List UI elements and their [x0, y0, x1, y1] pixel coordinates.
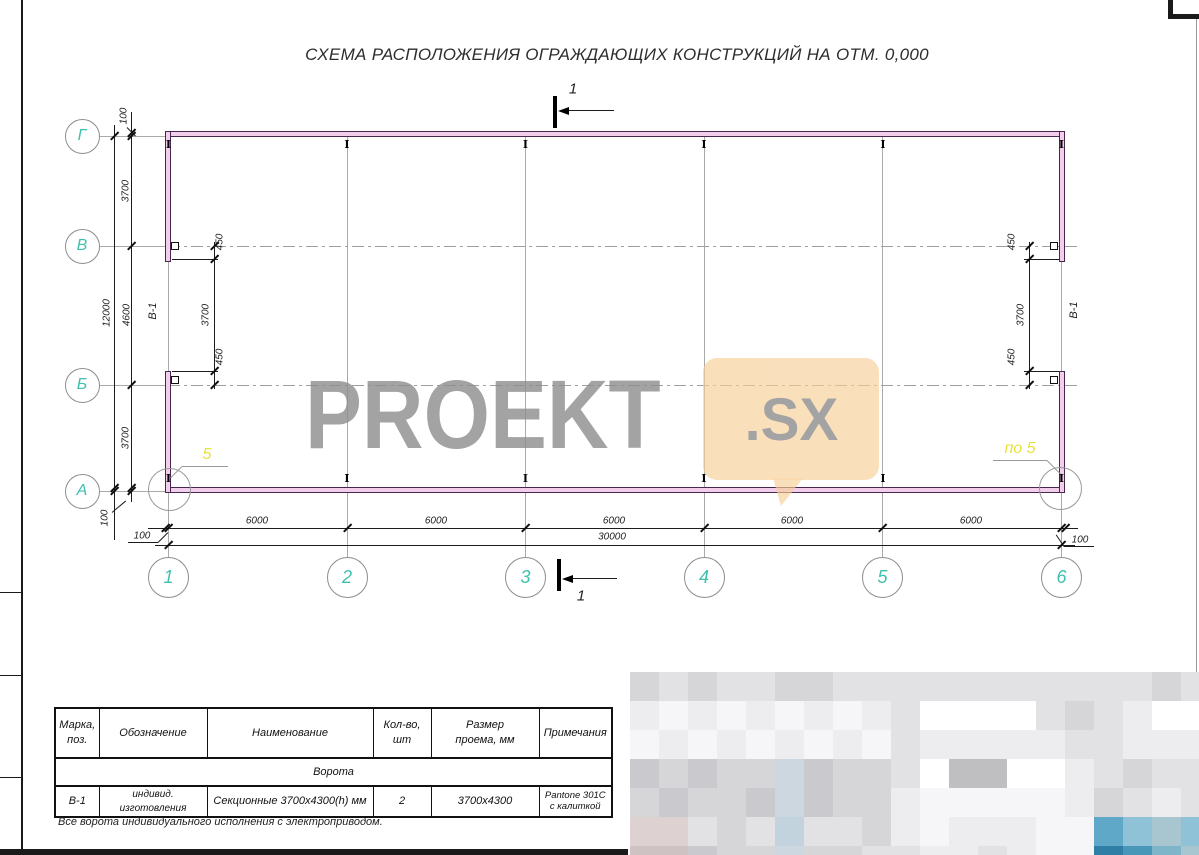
section-mark-arrowhead-top: [558, 107, 569, 115]
dim-label-6000: 6000: [603, 516, 625, 527]
mosaic-cell: [1094, 817, 1124, 847]
mosaic-cell: [833, 846, 863, 855]
mosaic-cell: [688, 730, 718, 760]
dim-leader: [1064, 546, 1094, 547]
spec-header-notes: Примечания: [539, 708, 612, 758]
mosaic-cell: [862, 788, 892, 818]
mosaic-cell: [920, 788, 950, 818]
column-mark: I: [523, 139, 528, 150]
mosaic-cell: [1152, 759, 1182, 789]
mosaic-cell: [1007, 672, 1037, 702]
mosaic-cell: [746, 672, 776, 702]
detail-label-right: по 5: [1004, 440, 1035, 458]
mosaic-cell: [891, 701, 921, 731]
mosaic-cell: [804, 701, 834, 731]
axis-bubble-col-6: 6: [1041, 557, 1082, 598]
mosaic-cell: [1123, 817, 1153, 847]
dim-label-4600: 4600: [122, 304, 133, 326]
dim-label-3700: 3700: [121, 180, 132, 202]
dim-label-3700-gate: 3700: [1016, 304, 1027, 326]
frame-margin-tick: [0, 592, 21, 593]
mosaic-cell: [978, 701, 1008, 731]
mosaic-cell: [775, 788, 805, 818]
mosaic-cell: [920, 759, 950, 789]
mosaic-cell: [630, 759, 660, 789]
mosaic-cell: [949, 846, 979, 855]
dim-label-6000: 6000: [781, 516, 803, 527]
mosaic-cell: [659, 817, 689, 847]
mosaic-cell: [891, 730, 921, 760]
mosaic-cell: [949, 672, 979, 702]
axis-bubble-label: 1: [163, 567, 173, 588]
spec-header-designation: Обозначение: [99, 708, 207, 758]
watermark-bubble: .SX: [703, 358, 879, 480]
mosaic-cell: [775, 701, 805, 731]
mosaic-cell: [949, 759, 979, 789]
watermark-suffix: .SX: [744, 385, 838, 454]
mosaic-cell: [775, 672, 805, 702]
section-mark-arrowhead-bottom: [562, 575, 573, 583]
mosaic-cell: [1036, 817, 1066, 847]
column-mark: I: [701, 139, 706, 150]
mosaic-cell: [1181, 701, 1199, 731]
mosaic-cell: [862, 701, 892, 731]
spec-group-row: Ворота: [55, 758, 612, 786]
mosaic-cell: [1094, 672, 1124, 702]
mosaic-cell: [1152, 672, 1182, 702]
dim-label-100-offset-left: 100: [134, 531, 151, 542]
dim-label-6000: 6000: [960, 516, 982, 527]
frame-corner-horizontal: [1168, 14, 1199, 19]
mosaic-cell: [1007, 759, 1037, 789]
mosaic-cell: [804, 846, 834, 855]
frame-left-line: [21, 0, 23, 851]
mosaic-cell: [1065, 701, 1095, 731]
mosaic-cell: [717, 788, 747, 818]
mosaic-cell: [688, 817, 718, 847]
mosaic-cell: [1036, 672, 1066, 702]
mosaic-cell: [1036, 701, 1066, 731]
wall-top: [165, 131, 1065, 137]
mosaic-cell: [630, 701, 660, 731]
mosaic-cell: [891, 759, 921, 789]
axis-bubble-row-g: Г: [65, 119, 100, 154]
watermark: PROEKT .SX: [305, 352, 885, 504]
mosaic-cell: [717, 759, 747, 789]
dim-label-450: 450: [1007, 234, 1018, 251]
mosaic-cell: [717, 817, 747, 847]
mosaic-cell: [1152, 788, 1182, 818]
axis-bubble-col-1: 1: [148, 557, 189, 598]
mosaic-cell: [1181, 846, 1199, 855]
mosaic-cell: [1152, 701, 1182, 731]
mosaic-cell: [688, 701, 718, 731]
axis-bubble-col-4: 4: [684, 557, 725, 598]
mosaic-cell: [1152, 817, 1182, 847]
mosaic-cell: [1007, 788, 1037, 818]
mosaic-cell: [775, 730, 805, 760]
axis-line-v-dashdot: [168, 246, 1078, 247]
mosaic-cell: [746, 788, 776, 818]
spec-header-size: Размер проема, мм: [431, 708, 539, 758]
censored-image-mosaic: [630, 672, 1199, 855]
mosaic-cell: [804, 672, 834, 702]
axis-bubble-col-3: 3: [505, 557, 546, 598]
mosaic-cell: [1123, 672, 1153, 702]
detail-leader: [182, 466, 228, 467]
mosaic-cell: [1181, 730, 1199, 760]
mosaic-cell: [804, 817, 834, 847]
mosaic-cell: [920, 817, 950, 847]
mosaic-cell: [630, 817, 660, 847]
mosaic-cell: [717, 730, 747, 760]
axis-bubble-col-2: 2: [327, 557, 368, 598]
axis-bubble-row-b: Б: [65, 368, 100, 403]
gate-jamb-mark: [1050, 376, 1058, 384]
mosaic-cell: [1007, 846, 1037, 855]
mosaic-cell: [775, 759, 805, 789]
watermark-bubble-tail: [773, 478, 803, 506]
mosaic-cell: [688, 846, 718, 855]
dim-label-100-offset-right: 100: [1072, 535, 1089, 546]
spec-cell-name: Секционные 3700х4300(h) мм: [207, 786, 373, 817]
axis-bubble-label: А: [77, 482, 88, 500]
mosaic-cell: [1007, 730, 1037, 760]
axis-bubble-label: 4: [699, 567, 709, 588]
mosaic-cell: [1036, 788, 1066, 818]
mosaic-cell: [1036, 730, 1066, 760]
frame-margin-tick: [0, 777, 21, 778]
dim-label-450: 450: [215, 349, 226, 366]
mosaic-cell: [1123, 759, 1153, 789]
dim-leader: [128, 542, 158, 543]
mosaic-cell: [920, 730, 950, 760]
mosaic-cell: [659, 672, 689, 702]
mosaic-cell: [659, 788, 689, 818]
mosaic-cell: [775, 846, 805, 855]
mosaic-cell: [978, 759, 1008, 789]
watermark-text: PROEKT: [305, 366, 661, 463]
mosaic-cell: [1123, 788, 1153, 818]
dim-label-3700-gate: 3700: [201, 304, 212, 326]
axis-bubble-label: В: [77, 237, 88, 255]
mosaic-cell: [1065, 672, 1095, 702]
mosaic-cell: [1094, 846, 1124, 855]
gate-mark-label-right: В-1: [1068, 301, 1080, 318]
mosaic-cell: [949, 788, 979, 818]
axis-bubble-label: 6: [1056, 567, 1066, 588]
mosaic-cell: [659, 701, 689, 731]
dim-line-left-total: [114, 125, 115, 540]
mosaic-cell: [862, 672, 892, 702]
axis-bubble-label: 3: [520, 567, 530, 588]
mosaic-cell: [746, 701, 776, 731]
detail-label-left: 5: [203, 446, 212, 464]
gate-jamb-mark: [171, 376, 179, 384]
section-mark-bar-top: [553, 96, 557, 128]
mosaic-cell: [1094, 788, 1124, 818]
mosaic-cell: [630, 846, 660, 855]
mosaic-cell: [717, 846, 747, 855]
mosaic-cell: [833, 730, 863, 760]
mosaic-cell: [833, 701, 863, 731]
axis-bubble-label: 5: [877, 567, 887, 588]
drawing-sheet: СХЕМА РАСПОЛОЖЕНИЯ ОГРАЖДАЮЩИХ КОНСТРУКЦ…: [0, 0, 1199, 855]
mosaic-cell: [659, 759, 689, 789]
detail-leader: [993, 460, 1047, 461]
section-mark-arrow-line-top: [569, 110, 614, 111]
mosaic-cell: [688, 759, 718, 789]
spec-header-qty: Кол-во, шт: [373, 708, 431, 758]
mosaic-cell: [949, 817, 979, 847]
mosaic-cell: [1123, 730, 1153, 760]
mosaic-cell: [949, 701, 979, 731]
mosaic-cell: [746, 759, 776, 789]
column-mark: I: [880, 139, 885, 150]
mosaic-cell: [978, 846, 1008, 855]
axis-bubble-label: Г: [78, 127, 87, 145]
mosaic-cell: [746, 846, 776, 855]
mosaic-cell: [746, 817, 776, 847]
dim-label-6000: 6000: [425, 516, 447, 527]
column-mark: I: [1059, 473, 1064, 484]
dim-line-gate-left: [214, 242, 215, 389]
mosaic-cell: [862, 759, 892, 789]
mosaic-cell: [1181, 788, 1199, 818]
mosaic-cell: [1094, 730, 1124, 760]
mosaic-cell: [978, 730, 1008, 760]
mosaic-cell: [891, 672, 921, 702]
mosaic-cell: [1036, 759, 1066, 789]
dim-line-gate-right: [1029, 242, 1030, 389]
axis-bubble-col-5: 5: [862, 557, 903, 598]
mosaic-cell: [978, 788, 1008, 818]
mosaic-cell: [1065, 788, 1095, 818]
frame-right-line: [1196, 19, 1197, 672]
axis-bubble-label: 2: [342, 567, 352, 588]
dim-label-3700: 3700: [121, 427, 132, 449]
column-mark: I: [166, 473, 171, 484]
spec-cell-mark: В-1: [55, 786, 99, 817]
mosaic-cell: [775, 817, 805, 847]
dim-label-6000: 6000: [246, 516, 268, 527]
mosaic-cell: [717, 701, 747, 731]
dim-label-100-bottom: 100: [100, 510, 111, 527]
dim-label-12000: 12000: [102, 299, 113, 327]
section-mark-arrow-line-bottom: [573, 578, 617, 579]
mosaic-cell: [833, 672, 863, 702]
mosaic-cell: [804, 730, 834, 760]
mosaic-cell: [688, 672, 718, 702]
mosaic-cell: [804, 759, 834, 789]
mosaic-cell: [1065, 759, 1095, 789]
mosaic-cell: [862, 817, 892, 847]
mosaic-cell: [688, 788, 718, 818]
mosaic-cell: [862, 730, 892, 760]
gate-jamb-mark: [1050, 242, 1058, 250]
spec-cell-size: 3700х4300: [431, 786, 539, 817]
mosaic-cell: [833, 759, 863, 789]
axis-bubble-label: Б: [77, 376, 87, 394]
dim-label-100-top: 100: [119, 108, 130, 125]
mosaic-cell: [1036, 846, 1066, 855]
frame-bottom-line: [0, 849, 628, 855]
section-mark-label-bottom: 1: [577, 588, 585, 605]
mosaic-cell: [1094, 701, 1124, 731]
mosaic-cell: [717, 672, 747, 702]
dim-leader: [158, 532, 169, 543]
mosaic-cell: [1181, 759, 1199, 789]
dim-label-450: 450: [1007, 349, 1018, 366]
dim-line-bottom-segments: [148, 528, 1078, 529]
mosaic-cell: [1094, 759, 1124, 789]
mosaic-cell: [891, 846, 921, 855]
mosaic-cell: [978, 672, 1008, 702]
mosaic-cell: [978, 817, 1008, 847]
mosaic-cell: [1152, 846, 1182, 855]
dim-line-bottom-total: [155, 545, 1075, 546]
mosaic-cell: [920, 672, 950, 702]
drawing-title: СХЕМА РАСПОЛОЖЕНИЯ ОГРАЖДАЮЩИХ КОНСТРУКЦ…: [305, 45, 929, 65]
axis-line-v: [99, 246, 168, 247]
column-mark: I: [166, 139, 171, 150]
mosaic-cell: [891, 817, 921, 847]
mosaic-cell: [920, 846, 950, 855]
mosaic-cell: [1007, 701, 1037, 731]
mosaic-cell: [1123, 701, 1153, 731]
mosaic-cell: [891, 788, 921, 818]
mosaic-cell: [920, 701, 950, 731]
mosaic-cell: [862, 846, 892, 855]
mosaic-cell: [1123, 846, 1153, 855]
mosaic-cell: [630, 730, 660, 760]
axis-bubble-row-a: А: [65, 474, 100, 509]
mosaic-cell: [659, 730, 689, 760]
column-mark: I: [344, 139, 349, 150]
axis-line-b: [99, 385, 168, 386]
mosaic-cell: [804, 788, 834, 818]
mosaic-cell: [1152, 730, 1182, 760]
dim-label-30000: 30000: [598, 532, 626, 543]
drawing-note: Все ворота индивидуального исполнения с …: [58, 816, 383, 828]
frame-margin-tick: [0, 675, 21, 676]
mosaic-cell: [1065, 730, 1095, 760]
mosaic-cell: [1181, 817, 1199, 847]
spec-cell-designation: индивид. изготовления: [99, 786, 207, 817]
spec-cell-qty: 2: [373, 786, 431, 817]
mosaic-cell: [1181, 672, 1199, 702]
mosaic-cell: [1065, 817, 1095, 847]
column-mark: I: [1059, 139, 1064, 150]
gate-jamb-mark: [171, 242, 179, 250]
mosaic-cell: [949, 730, 979, 760]
spec-table: Марка, поз. Обозначение Наименование Кол…: [54, 707, 613, 818]
mosaic-cell: [630, 788, 660, 818]
mosaic-cell: [833, 788, 863, 818]
gate-mark-label-left: В-1: [147, 302, 159, 319]
mosaic-cell: [833, 817, 863, 847]
spec-header-mark: Марка, поз.: [55, 708, 99, 758]
axis-bubble-row-v: В: [65, 229, 100, 264]
spec-cell-notes: Pantone 301C с калиткой: [539, 786, 612, 817]
spec-header-name: Наименование: [207, 708, 373, 758]
spec-data-row: В-1 индивид. изготовления Секционные 370…: [55, 786, 612, 817]
section-mark-label-top: 1: [569, 81, 577, 98]
mosaic-cell: [1007, 817, 1037, 847]
mosaic-cell: [630, 672, 660, 702]
mosaic-cell: [659, 846, 689, 855]
mosaic-cell: [1065, 846, 1095, 855]
mosaic-cell: [746, 730, 776, 760]
section-mark-bar-bottom: [557, 559, 561, 591]
